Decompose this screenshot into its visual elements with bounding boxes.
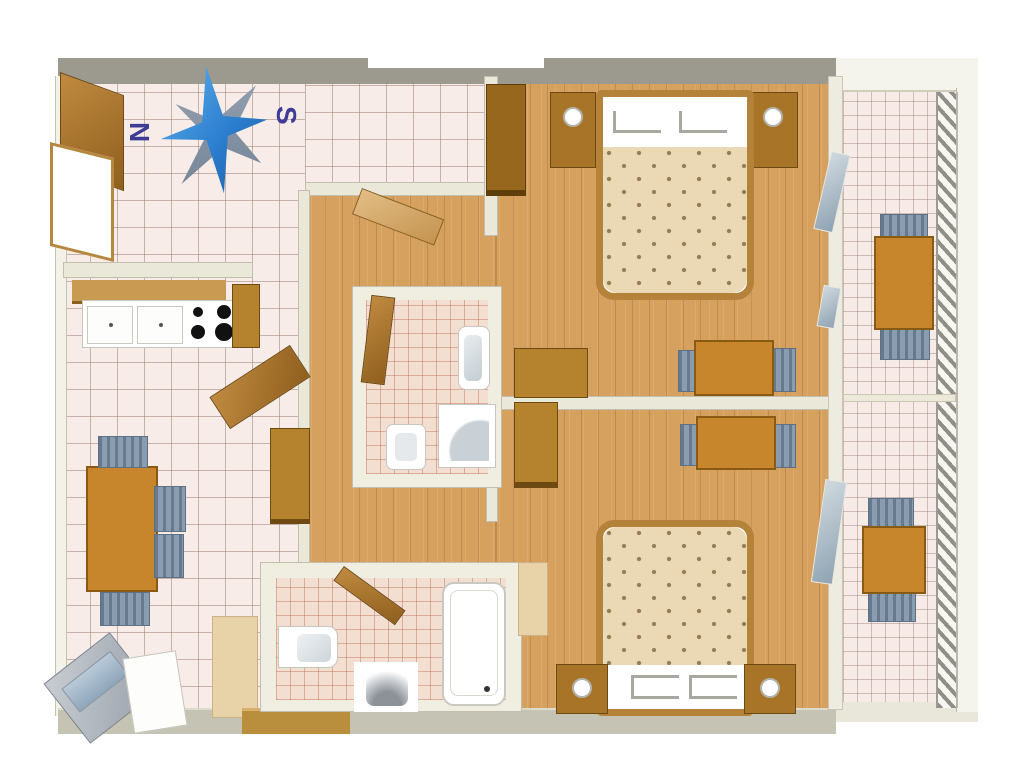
compass-south-label: S	[272, 106, 302, 136]
bathtub	[442, 582, 506, 706]
shower-tray	[445, 411, 489, 461]
floor-plan: N S	[0, 0, 1024, 782]
bed-pillow-area	[603, 665, 747, 709]
balcony-chair	[868, 592, 916, 622]
kitchen-cabinet-door	[87, 306, 133, 344]
top-wall-notch	[368, 56, 544, 68]
bed-duvet	[603, 147, 747, 293]
lamp	[572, 678, 592, 698]
nightstand	[550, 92, 596, 168]
entrance-hallway-wall	[305, 182, 487, 196]
stove-burner	[217, 305, 231, 319]
shower	[438, 404, 496, 468]
pillow	[613, 111, 661, 133]
double-bed-south	[596, 520, 754, 716]
stove-burner	[191, 325, 205, 339]
bedroom-south-rug	[518, 562, 548, 636]
washbasin-bowl	[297, 634, 331, 662]
hallway-cabinet	[270, 428, 310, 524]
living-rug	[212, 616, 258, 718]
entrance-hall-floor	[305, 76, 484, 194]
kitchen-tall-cabinet	[232, 284, 260, 348]
cabinet-handle	[109, 323, 113, 327]
bedroom-north-table	[694, 340, 774, 396]
stove-burner	[193, 307, 203, 317]
dining-chair	[100, 592, 150, 626]
toilet-upper	[386, 424, 426, 470]
entry-window-panel	[50, 142, 114, 262]
cabinet-handle	[159, 323, 163, 327]
balcony-north-table	[874, 236, 934, 330]
lamp	[563, 107, 583, 127]
pillow	[631, 675, 679, 699]
dining-chair	[154, 534, 184, 578]
nightstand	[744, 664, 796, 714]
bedroom-chair	[772, 348, 796, 392]
kitchen-cabinet-door	[137, 306, 183, 344]
compass-north-label: N	[125, 122, 155, 152]
bedroom-south-wardrobe	[514, 402, 558, 488]
bathtub-inner	[450, 590, 498, 696]
washbasin-lower	[278, 626, 338, 668]
pillow	[679, 111, 727, 133]
dining-table	[86, 466, 158, 592]
washbasin	[458, 326, 490, 390]
bathtub-drain	[484, 686, 490, 692]
double-bed-north	[596, 90, 754, 300]
entrance-kitchen-wall	[63, 262, 253, 278]
lamp	[763, 107, 783, 127]
bedroom-south-table	[696, 416, 776, 470]
washbasin-bowl	[464, 335, 482, 381]
dining-chair	[98, 436, 148, 468]
bedroom-north-cabinet	[514, 348, 588, 398]
toilet-bowl	[395, 433, 417, 461]
nightstand	[556, 664, 608, 714]
sideboard	[122, 650, 187, 734]
toilet-lower	[354, 662, 418, 712]
pillow	[689, 675, 737, 699]
kitchen-counter	[82, 300, 244, 348]
balcony-chair	[880, 326, 930, 360]
nightstand	[748, 92, 798, 168]
lamp	[760, 678, 780, 698]
dining-chair	[154, 486, 186, 532]
bed-duvet	[603, 527, 747, 665]
balcony-divider	[843, 394, 956, 402]
balcony-south-table	[862, 526, 926, 594]
top-right-outer-wall	[836, 58, 978, 92]
bedroom-north-wardrobe	[486, 84, 526, 196]
stove-burner	[215, 323, 233, 341]
right-outer-wall	[956, 88, 978, 712]
toilet-bowl	[366, 664, 408, 706]
bed-pillow-area	[603, 97, 747, 147]
